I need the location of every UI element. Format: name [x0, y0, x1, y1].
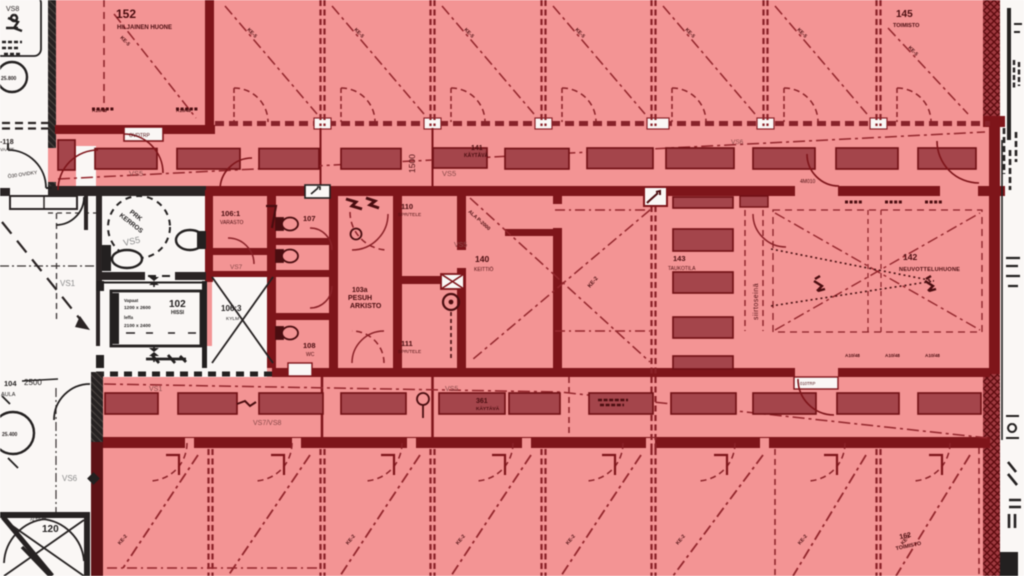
svg-text:A10/48: A10/48	[176, 108, 191, 113]
svg-text:VS6: VS6	[731, 139, 744, 146]
svg-text:102: 102	[169, 299, 186, 310]
svg-text:VAATE: VAATE	[0, 147, 14, 152]
svg-text:143: 143	[673, 254, 686, 263]
svg-text:SPR/TELE: SPR/TELE	[398, 212, 421, 218]
svg-text:OVDTRP: OVDTRP	[129, 133, 151, 139]
svg-text:Vapaat: Vapaat	[124, 298, 139, 303]
svg-text:ARKISTO: ARKISTO	[350, 303, 382, 310]
svg-text:HILJAINEN HUONE: HILJAINEN HUONE	[117, 25, 172, 31]
svg-text:PESUH: PESUH	[348, 295, 372, 302]
svg-text:A10/48: A10/48	[92, 108, 107, 113]
svg-text:SPR/TELE: SPR/TELE	[398, 349, 421, 355]
svg-text:AULA: AULA	[1, 392, 16, 398]
svg-text:4M010: 4M010	[800, 179, 816, 185]
svg-text:145: 145	[896, 9, 913, 20]
svg-text:VARASTO: VARASTO	[220, 220, 244, 226]
svg-text:KÄYTÄVÄ: KÄYTÄVÄ	[476, 405, 500, 412]
svg-text:010TRP: 010TRP	[800, 381, 816, 386]
svg-text:A10/48: A10/48	[925, 353, 940, 358]
svg-text:1200 x 2600: 1200 x 2600	[124, 305, 151, 311]
svg-text:A10/48: A10/48	[845, 353, 860, 358]
svg-text:VS5: VS5	[454, 242, 467, 249]
svg-text:141: 141	[471, 145, 483, 152]
svg-text:140: 140	[475, 254, 489, 264]
svg-text:25.400: 25.400	[2, 432, 18, 438]
svg-text:A10/48: A10/48	[885, 353, 900, 358]
svg-text:142: 142	[903, 252, 917, 262]
svg-text:25.800: 25.800	[1, 76, 17, 82]
svg-text:111: 111	[401, 339, 413, 348]
svg-text:106:3: 106:3	[221, 304, 242, 313]
svg-text:103a: 103a	[352, 287, 368, 294]
svg-text:108: 108	[303, 341, 316, 350]
svg-text:VS5: VS5	[442, 169, 456, 178]
svg-text:siirtoseinä: siirtoseinä	[753, 283, 760, 320]
svg-text:leffa: leffa	[124, 315, 134, 320]
svg-text:361: 361	[476, 398, 488, 405]
svg-text:1500: 1500	[407, 154, 417, 173]
svg-text:107: 107	[303, 214, 316, 223]
svg-text:VS7/VS8: VS7/VS8	[253, 420, 282, 427]
svg-text:110: 110	[401, 202, 413, 211]
svg-text:VS7: VS7	[230, 264, 243, 271]
svg-text:VS1: VS1	[149, 386, 162, 393]
svg-text:VS5: VS5	[445, 386, 458, 393]
svg-text:KEITTIÖ: KEITTIÖ	[474, 266, 494, 273]
svg-text:VS5: VS5	[129, 169, 143, 178]
svg-text:106:1: 106:1	[221, 209, 240, 218]
svg-text:VS8: VS8	[6, 6, 19, 13]
svg-text:VS1: VS1	[60, 279, 76, 288]
svg-text:KYLM: KYLM	[226, 316, 239, 322]
svg-text:TAUKOTILA: TAUKOTILA	[668, 266, 696, 272]
svg-text:NEUVOTTELUHUONE: NEUVOTTELUHUONE	[899, 267, 960, 273]
svg-text:152: 152	[116, 7, 136, 21]
svg-text:KÄYTÄVÄ: KÄYTÄVÄ	[464, 152, 489, 159]
svg-text:120: 120	[42, 524, 59, 535]
svg-text:104: 104	[4, 379, 17, 388]
svg-text:TOIMISTO: TOIMISTO	[893, 23, 920, 29]
svg-text:AL50: AL50	[30, 517, 41, 522]
svg-text:2100 x 2400: 2100 x 2400	[124, 323, 151, 329]
svg-text:VS6: VS6	[62, 474, 78, 483]
svg-text:-118: -118	[0, 139, 14, 146]
svg-text:HISSI: HISSI	[171, 310, 185, 316]
svg-text:WC: WC	[306, 352, 315, 358]
